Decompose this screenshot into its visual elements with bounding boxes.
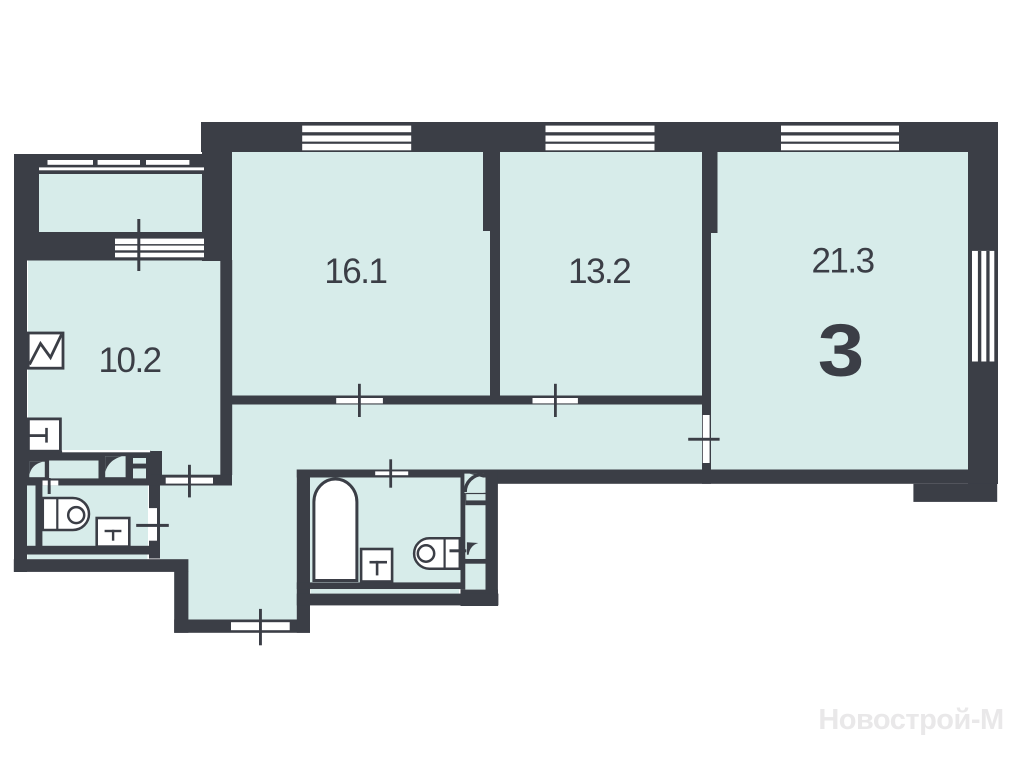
svg-text:Новострой-М: Новострой-М — [818, 704, 1003, 736]
svg-text:3: 3 — [818, 309, 864, 391]
svg-text:16.1: 16.1 — [324, 252, 386, 291]
svg-text:10.2: 10.2 — [99, 341, 161, 380]
svg-text:13.2: 13.2 — [568, 252, 630, 291]
svg-text:21.3: 21.3 — [811, 242, 873, 281]
